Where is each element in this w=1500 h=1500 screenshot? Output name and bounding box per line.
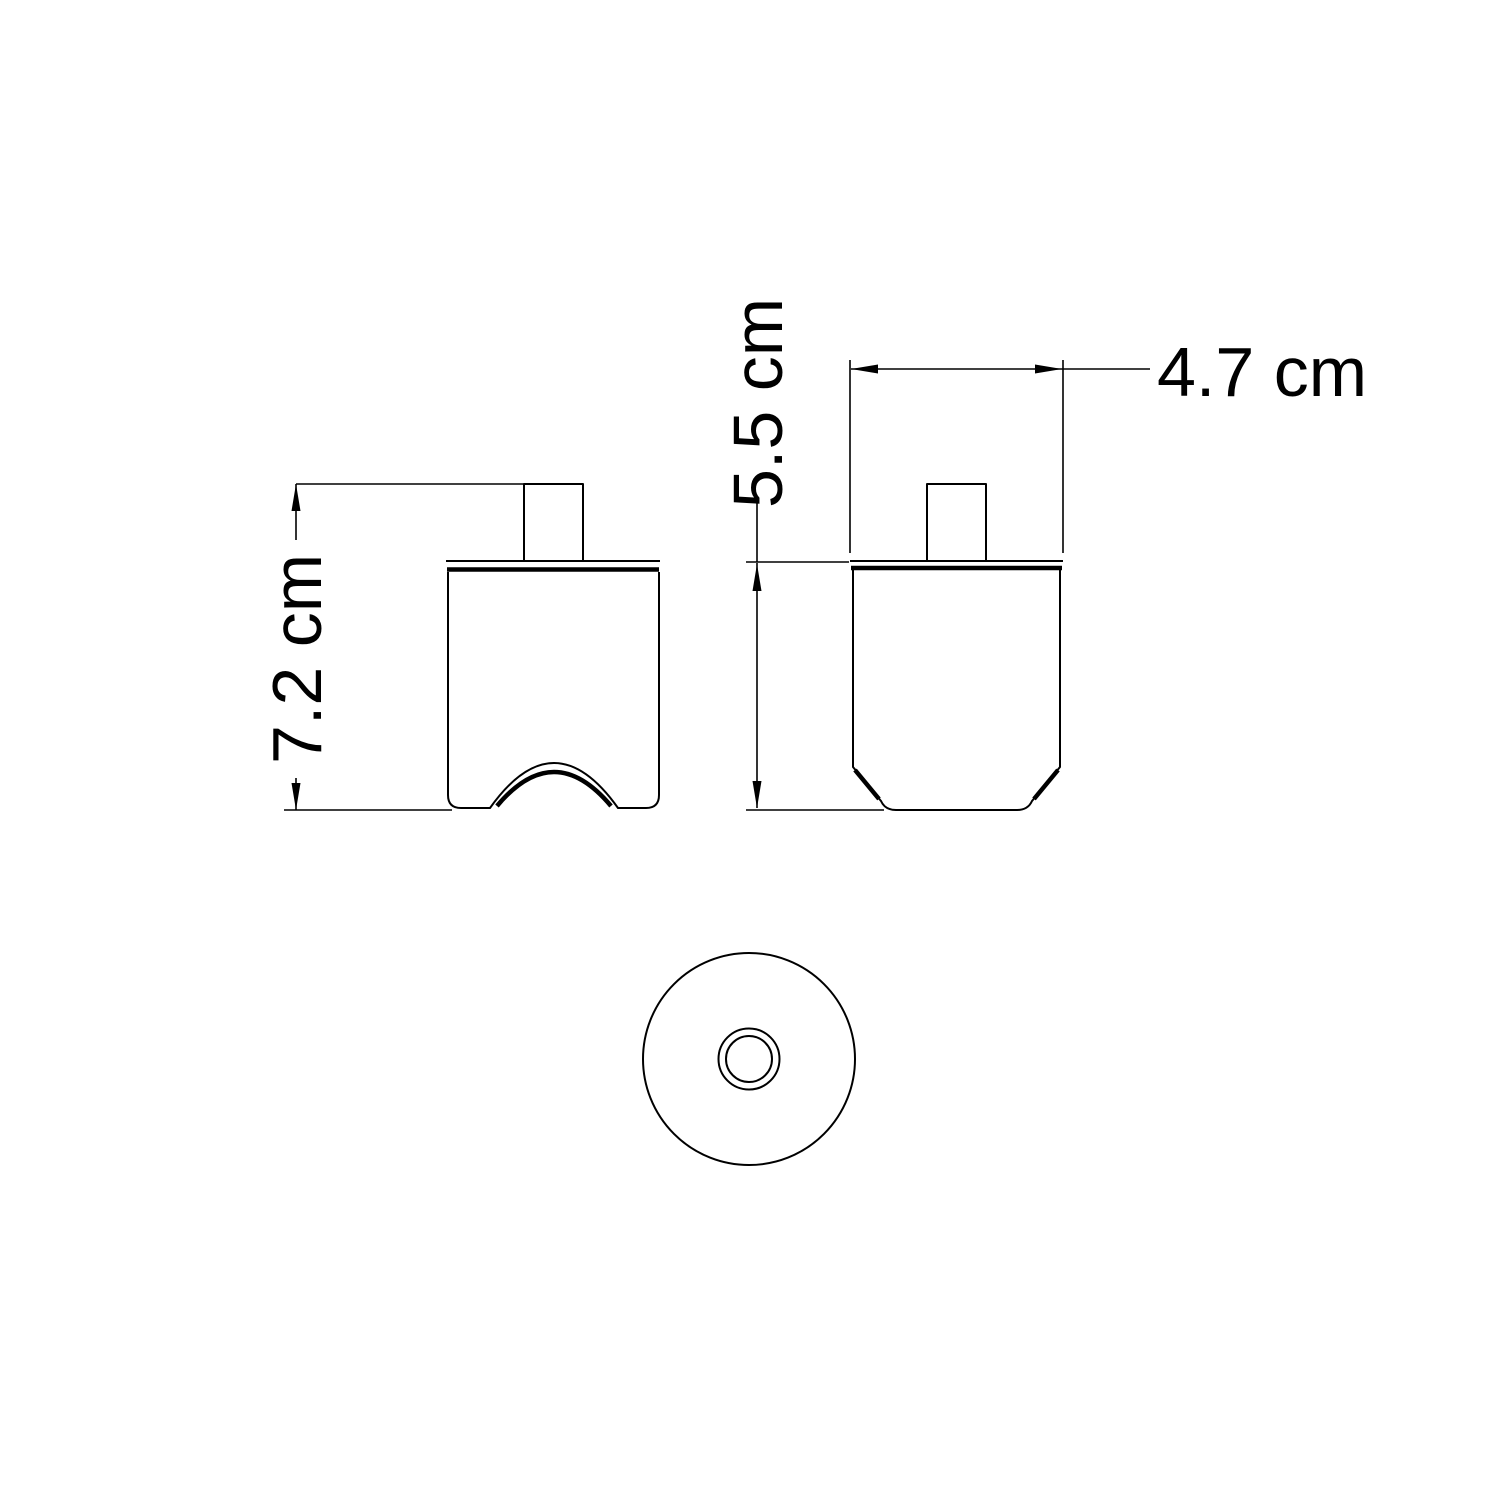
side-stem <box>927 484 986 561</box>
dim-arrow-left-icon <box>851 365 878 374</box>
front-view: 7.2 cm <box>258 484 660 810</box>
bottom-view-hole-outer-circle <box>719 1029 780 1090</box>
side-height-dimension: 5.5 cm <box>719 298 884 810</box>
side-chamfer-left <box>855 770 879 799</box>
front-arch-inner-arc <box>497 772 611 806</box>
front-height-dimension: 7.2 cm <box>258 484 524 810</box>
dim-arrow-right-icon <box>1035 365 1062 374</box>
bottom-view <box>643 953 855 1165</box>
bottom-view-hole-inner-circle <box>726 1036 772 1082</box>
side-chamfer-right <box>1034 770 1058 799</box>
bottom-view-outer-circle <box>643 953 855 1165</box>
dim-arrow-up-icon <box>292 484 301 511</box>
side-body-outline <box>853 570 1060 810</box>
side-width-dimension-label: 4.7 cm <box>1157 333 1367 411</box>
technical-drawing-canvas: 7.2 cm 4.7 cm <box>0 0 1500 1500</box>
dim-arrow-down-icon <box>292 783 301 810</box>
front-stem <box>524 484 583 561</box>
dim-arrow-down-icon <box>753 781 762 808</box>
dim-arrow-up-icon <box>753 564 762 591</box>
side-height-dimension-label: 5.5 cm <box>719 298 797 508</box>
front-height-dimension-label: 7.2 cm <box>258 554 336 764</box>
side-view: 4.7 cm 5.5 cm <box>719 298 1367 810</box>
technical-drawing-page: 7.2 cm 4.7 cm <box>0 0 1500 1500</box>
